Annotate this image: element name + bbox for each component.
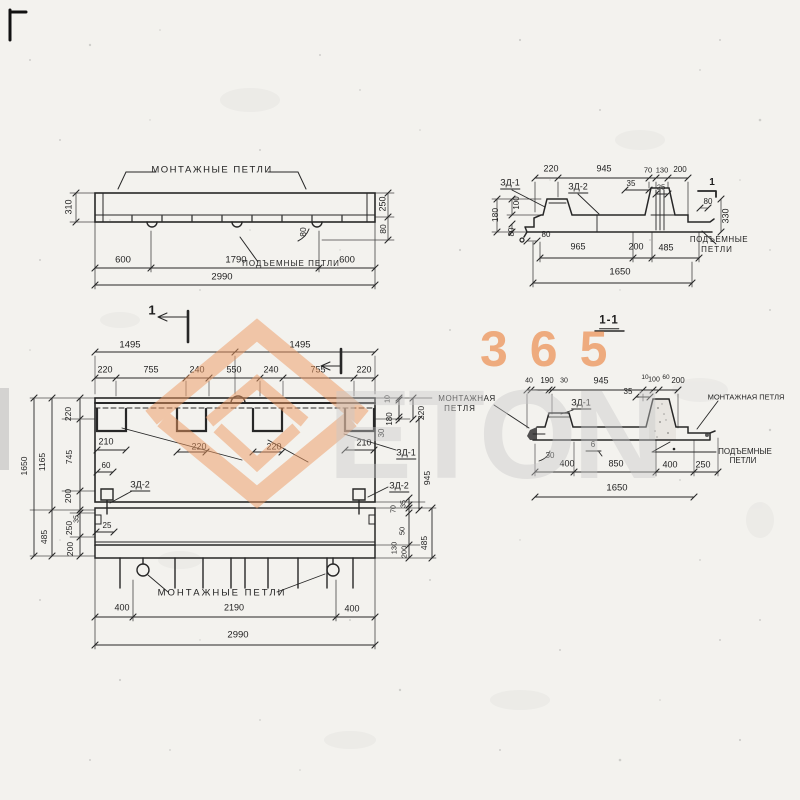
dim-755-r2a: 755	[143, 366, 158, 375]
weld-mark-6: 6	[591, 441, 595, 449]
dim-485-right: 485	[420, 536, 429, 550]
dim-220-mid1: 220	[191, 443, 206, 452]
dim-180-plan: 180	[386, 412, 394, 425]
dim-130: 130	[656, 166, 669, 174]
dim-80-bottom: 80	[542, 231, 551, 239]
dim-30-s11: 30	[560, 378, 568, 385]
dim-220-r2b: 220	[356, 366, 371, 375]
dim-total-2990-plan: 2990	[227, 630, 248, 640]
dim-400b-s11: 400	[662, 461, 677, 470]
dim-80-right: 80	[379, 224, 388, 233]
dim-80-right2: 80	[704, 198, 713, 206]
dim-200-planr: 200	[400, 546, 408, 559]
label-mounting-loop-left-line1: МОНТАЖНАЯ	[438, 395, 495, 403]
dim-400-bb: 400	[344, 605, 359, 614]
dim-745: 745	[65, 450, 74, 464]
dim-310: 310	[65, 199, 74, 214]
dim-850-s11: 850	[608, 460, 623, 469]
label-zd2-left: ЗД-2	[130, 481, 150, 492]
dim-220: 220	[543, 165, 558, 174]
dim-100-s11: 100	[648, 377, 660, 384]
label-lifting-loops-s11-line2: ПЕТЛИ	[730, 457, 757, 465]
dim-25-plan: 25	[103, 522, 112, 530]
label-zd1-plan: ЗД-1	[396, 449, 416, 460]
dim-945-s11: 945	[593, 377, 608, 386]
drawing-linework	[0, 0, 800, 800]
dim-180: 180	[491, 208, 500, 222]
dim-1495-left: 1495	[119, 340, 140, 350]
dim-485-left: 485	[40, 530, 49, 544]
dim-1650-left: 1650	[20, 457, 29, 476]
section-title-1-1: 1-1	[599, 315, 619, 329]
label-mounting-loop-right: МОНТАЖНАЯ ПЕТЛЯ	[708, 393, 785, 401]
section-mark-1: 1	[709, 178, 715, 188]
label-zd2-right: ЗД-2	[389, 482, 409, 493]
dim-35-plan: 35	[401, 500, 408, 508]
label-mounting-loops-bottom: МОНТАЖНЫЕ ПЕТЛИ	[158, 588, 287, 598]
dim-220-mid2: 220	[266, 443, 281, 452]
dim-100: 100	[513, 196, 521, 209]
dim-240-r2a: 240	[189, 366, 204, 375]
label-mounting-loop-left-line2: ПЕТЛЯ	[444, 405, 476, 413]
dim-1165: 1165	[38, 453, 47, 471]
dim-130-plan: 130	[390, 542, 398, 555]
label-lifting-loops-s11-line1: ПОДЪЕМНЫЕ	[718, 448, 772, 456]
dim-200-lsa: 200	[64, 489, 73, 503]
label-zd1: ЗД-1	[500, 179, 520, 190]
label-zd2: ЗД-2	[568, 183, 588, 194]
label-zd1-s11: ЗД-1	[571, 399, 591, 410]
dim-600-right: 600	[339, 255, 355, 265]
dim-755-r2b: 755	[310, 366, 325, 375]
label-lifting-loops: ПОДЪЕМНЫЕ ПЕТЛИ	[242, 260, 340, 268]
view-panel-cross-section	[492, 175, 724, 287]
dim-250: 250	[379, 196, 388, 211]
dim-400a-s11: 400	[559, 460, 574, 469]
dim-80-left: 80	[508, 228, 516, 237]
label-mounting-loops: МОНТАЖНЫЕ ПЕТЛИ	[151, 165, 272, 175]
dim-60-s11: 60	[662, 375, 669, 382]
dim-30-plan: 30	[378, 429, 386, 438]
dim-50-plan: 50	[398, 527, 406, 535]
dim-2190: 2190	[224, 604, 244, 613]
dim-35-s11: 35	[624, 388, 633, 396]
dim-200b: 200	[628, 243, 643, 252]
dim-210-left: 210	[98, 438, 113, 447]
dim-220-ls: 220	[64, 407, 73, 421]
dim-550: 550	[226, 366, 241, 375]
dim-80-loop: 80	[299, 227, 308, 236]
dim-40-s11: 40	[525, 378, 533, 385]
dim-1495-right: 1495	[289, 340, 310, 350]
dim-210-right: 210	[356, 439, 371, 448]
dim-70-plan: 70	[391, 505, 398, 513]
dim-200: 200	[673, 166, 686, 174]
dim-total-1650-s11: 1650	[606, 483, 627, 493]
dim-485: 485	[658, 244, 673, 253]
dim-400-ba: 400	[114, 604, 129, 613]
dim-60: 60	[102, 462, 111, 470]
dim-945-plan: 945	[423, 471, 432, 485]
dim-25: 25	[657, 183, 665, 191]
dim-total-2990: 2990	[211, 272, 232, 282]
scanned-technical-drawing: МОНТАЖНЫЕ ПЕТЛИ 310 250 80 80 600 1790 6…	[0, 0, 800, 800]
dim-250-s11: 250	[695, 461, 710, 470]
dim-35-ls: 35	[74, 515, 81, 523]
dim-965: 965	[570, 243, 585, 252]
view-plan	[30, 311, 436, 649]
label-lifting-loops-line2: ПЕТЛИ	[701, 246, 733, 254]
dim-945: 945	[596, 165, 611, 174]
dim-190-s11: 190	[540, 377, 553, 385]
dim-35: 35	[627, 180, 636, 188]
dim-200-lsb: 200	[66, 542, 75, 556]
dim-220-r2a: 220	[97, 366, 112, 375]
section-mark-1-plan: 1	[148, 304, 155, 317]
dim-250-ls: 250	[65, 521, 74, 535]
dim-240-r2b: 240	[263, 366, 278, 375]
dim-10: 10	[385, 395, 392, 403]
label-lifting-loops-line1: ПОДЪЕМНЫЕ	[690, 236, 748, 244]
dim-600-left: 600	[115, 255, 131, 265]
dim-330: 330	[722, 208, 731, 223]
dim-200-s11: 200	[671, 377, 684, 385]
view-section-1-1	[494, 331, 721, 500]
dim-30b-s11: 30	[546, 452, 555, 460]
dim-70: 70	[644, 166, 652, 174]
dim-total-1650: 1650	[609, 267, 630, 277]
dim-220-right: 220	[417, 406, 426, 420]
